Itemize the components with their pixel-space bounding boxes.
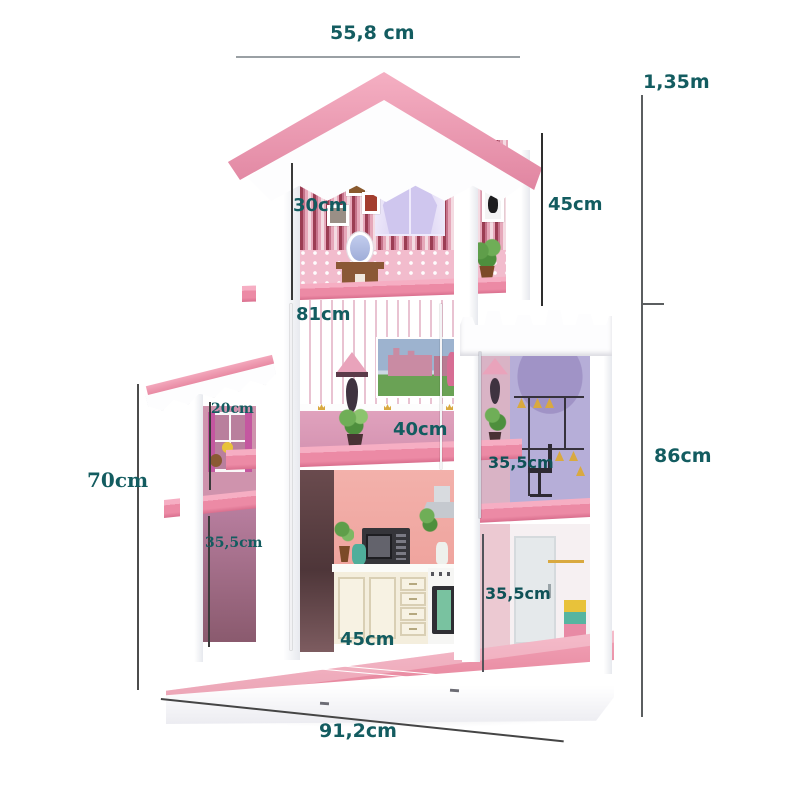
- dim-label-wing-lower-height: 35,5cm: [205, 536, 262, 550]
- base-foot: [450, 689, 459, 693]
- bathroom-shelf-teal: [564, 612, 586, 624]
- dim-label-base-width: 91,2cm: [319, 722, 397, 741]
- towel-rail: [548, 560, 584, 563]
- tower-crenellated-parapet: [460, 306, 612, 356]
- dim-label-wing-upper-height: 20cm: [211, 402, 254, 416]
- dim-line-top-room: [291, 163, 293, 300]
- floor-lamp-fringe: [336, 372, 368, 377]
- dim-label-top-room-height: 30cm: [293, 197, 347, 215]
- vanity-mirror: [347, 232, 373, 264]
- dim-label-left-column-height: 81cm: [296, 306, 350, 324]
- wing-lower-room: [202, 504, 256, 642]
- product-dimension-diagram: 55,8 cm 1,35m 30cm 45cm 81cm 20cm 70cm 4…: [0, 0, 800, 800]
- potted-plant: [338, 406, 370, 436]
- post-tower-right: [590, 330, 612, 674]
- dim-line-total-height: [641, 95, 643, 717]
- dim-label-tower-middle-height: 35,5cm: [488, 455, 554, 471]
- post-left-wing: [180, 394, 203, 662]
- clothes-rack-post: [528, 396, 530, 496]
- dim-line-left-column: [290, 304, 292, 650]
- dim-line-tower-middle: [479, 352, 481, 518]
- cabinet-drawer: [400, 592, 426, 606]
- dim-tick-total-height: [642, 303, 664, 305]
- dim-label-middle-room-height: 40cm: [393, 421, 447, 439]
- desk-chair-base: [530, 494, 552, 497]
- dim-label-top-right-height: 45cm: [548, 196, 602, 214]
- cabinet-drawer: [400, 577, 426, 591]
- cabinet-drawer: [400, 607, 426, 621]
- range-hood-chimney: [434, 486, 450, 504]
- dim-label-tower-lower-height: 35,5cm: [485, 586, 551, 602]
- dim-label-wing-total-height: 70cm: [87, 470, 148, 490]
- clothes-rack-rail: [514, 396, 584, 398]
- bathroom-shelf-yellow: [564, 600, 586, 612]
- post-left-main: [256, 140, 300, 660]
- bottle: [436, 542, 448, 564]
- vanity-table: [336, 262, 384, 269]
- kitchen-plant: [418, 506, 438, 534]
- closet-room-wall: [510, 352, 590, 506]
- desk-chair-pole: [538, 473, 541, 495]
- microwave-keypad: [396, 534, 406, 560]
- dim-line-middle-room: [440, 304, 442, 469]
- dim-label-top-width: 55,8 cm: [330, 24, 415, 43]
- dim-label-right-section-height: 86cm: [654, 447, 712, 466]
- kettle: [352, 544, 366, 565]
- teddy-bear-decor: [210, 454, 222, 467]
- dim-label-kitchen-width: 45cm: [340, 631, 394, 649]
- potted-plant: [482, 404, 508, 432]
- cabinet-drawer: [400, 622, 426, 636]
- dim-line-wing-total: [137, 384, 139, 690]
- kitchen-plant: [334, 518, 354, 546]
- microwave-window: [366, 534, 392, 559]
- dim-line-tower-lower: [482, 534, 484, 672]
- dim-line-top-width: [236, 56, 520, 58]
- dim-label-total-height: 1,35m: [643, 73, 710, 92]
- clothes-rack-post: [564, 396, 566, 450]
- oven-towel: [437, 590, 451, 630]
- dim-line-top-right: [541, 133, 543, 306]
- post-tower-left: [462, 350, 480, 662]
- base-foot: [320, 702, 329, 706]
